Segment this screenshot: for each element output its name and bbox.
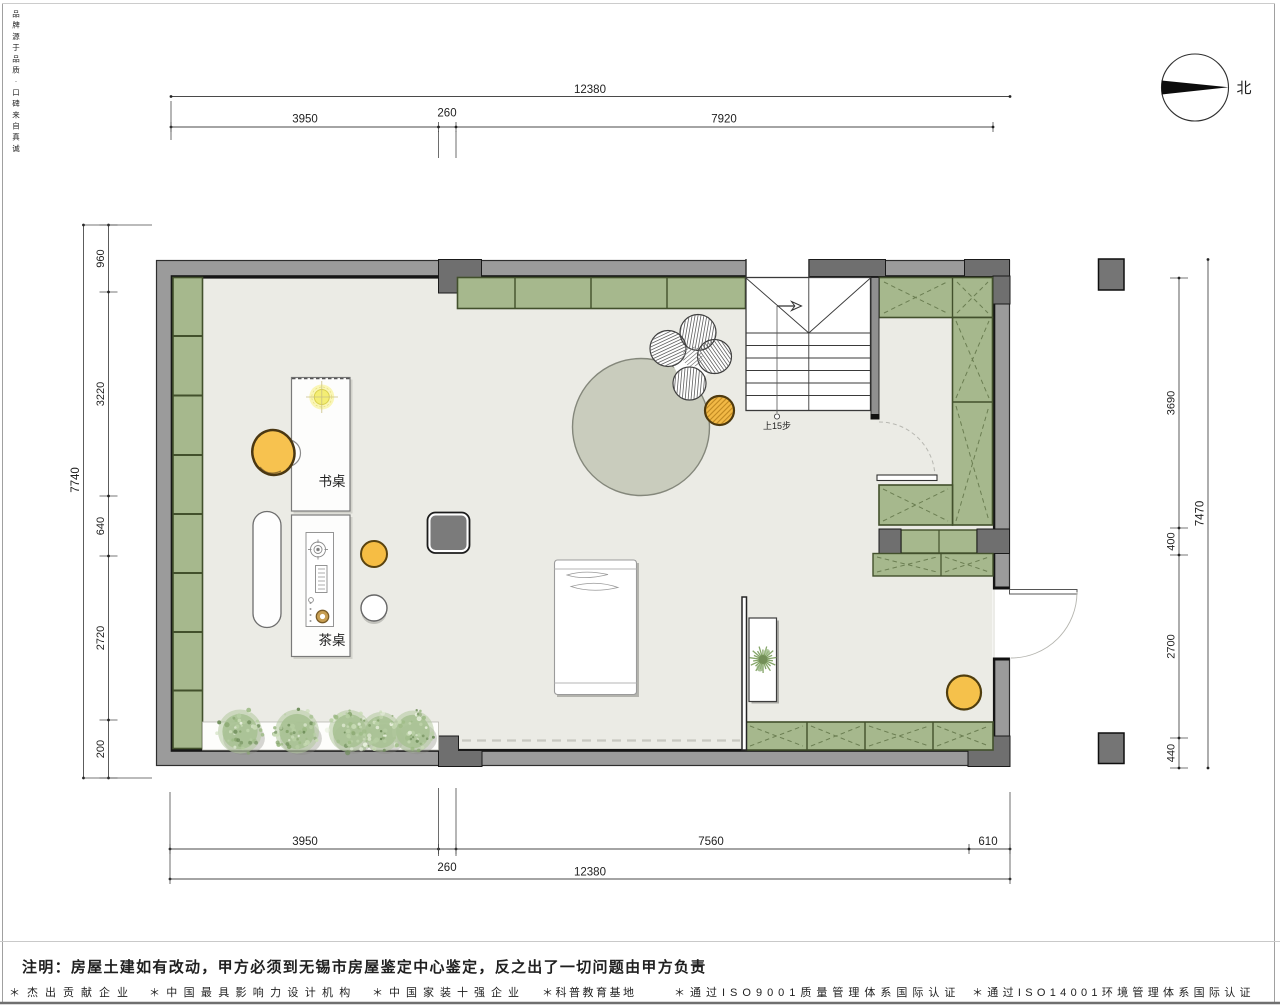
svg-text:260: 260 (437, 862, 456, 874)
svg-text:7920: 7920 (711, 114, 737, 126)
svg-text:碑: 碑 (12, 98, 20, 108)
svg-text:诚: 诚 (12, 143, 20, 153)
svg-text:书桌: 书桌 (319, 474, 346, 489)
svg-text:＊通过ISO14001环境管理体系国际认证: ＊通过ISO14001环境管理体系国际认证 (972, 985, 1255, 999)
svg-text:12380: 12380 (574, 867, 606, 879)
svg-text:3950: 3950 (292, 836, 318, 848)
svg-text:＊中国最具影响力设计机构: ＊中国最具影响力设计机构 (149, 985, 357, 999)
svg-text:＊中国家装十强企业: ＊中国家装十强企业 (372, 985, 525, 999)
svg-text:260: 260 (437, 108, 456, 120)
svg-text:7470: 7470 (1195, 501, 1207, 527)
svg-text:610: 610 (978, 836, 997, 848)
svg-text:北: 北 (1236, 80, 1251, 97)
svg-text:12380: 12380 (574, 84, 606, 96)
svg-text:3950: 3950 (292, 114, 318, 126)
svg-text:源: 源 (12, 32, 20, 41)
svg-text:440: 440 (1166, 744, 1178, 762)
svg-text:上15步: 上15步 (763, 421, 791, 431)
svg-text:2720: 2720 (95, 626, 107, 650)
svg-text:200: 200 (95, 740, 107, 758)
svg-text:2700: 2700 (1166, 634, 1178, 658)
svg-text:960: 960 (95, 249, 107, 267)
svg-text:·: · (15, 77, 18, 86)
svg-text:质: 质 (12, 65, 20, 75)
svg-text:来: 来 (12, 110, 20, 119)
svg-text:口: 口 (12, 88, 20, 97)
svg-text:茶桌: 茶桌 (319, 633, 346, 648)
svg-text:于: 于 (12, 43, 20, 52)
svg-text:真: 真 (12, 132, 20, 142)
svg-text:＊通过ISO9001质量管理体系国际认证: ＊通过ISO9001质量管理体系国际认证 (674, 985, 960, 999)
svg-text:＊杰出贡献企业: ＊杰出贡献企业 (9, 985, 135, 999)
svg-text:注明：房屋土建如有改动，甲方必须到无锡市房屋鉴定中心鉴定，反: 注明：房屋土建如有改动，甲方必须到无锡市房屋鉴定中心鉴定，反之出了一切问题由甲方… (22, 958, 707, 976)
svg-text:7560: 7560 (698, 836, 724, 848)
svg-text:牌: 牌 (12, 20, 20, 30)
svg-text:3690: 3690 (1166, 391, 1178, 415)
svg-text:品: 品 (12, 10, 20, 19)
svg-text:3220: 3220 (95, 382, 107, 406)
svg-text:＊科普教育基地: ＊科普教育基地 (542, 985, 637, 999)
svg-text:400: 400 (1166, 532, 1178, 550)
svg-text:640: 640 (95, 517, 107, 535)
svg-text:自: 自 (12, 121, 20, 131)
svg-text:7740: 7740 (70, 467, 82, 493)
svg-text:品: 品 (12, 54, 20, 63)
